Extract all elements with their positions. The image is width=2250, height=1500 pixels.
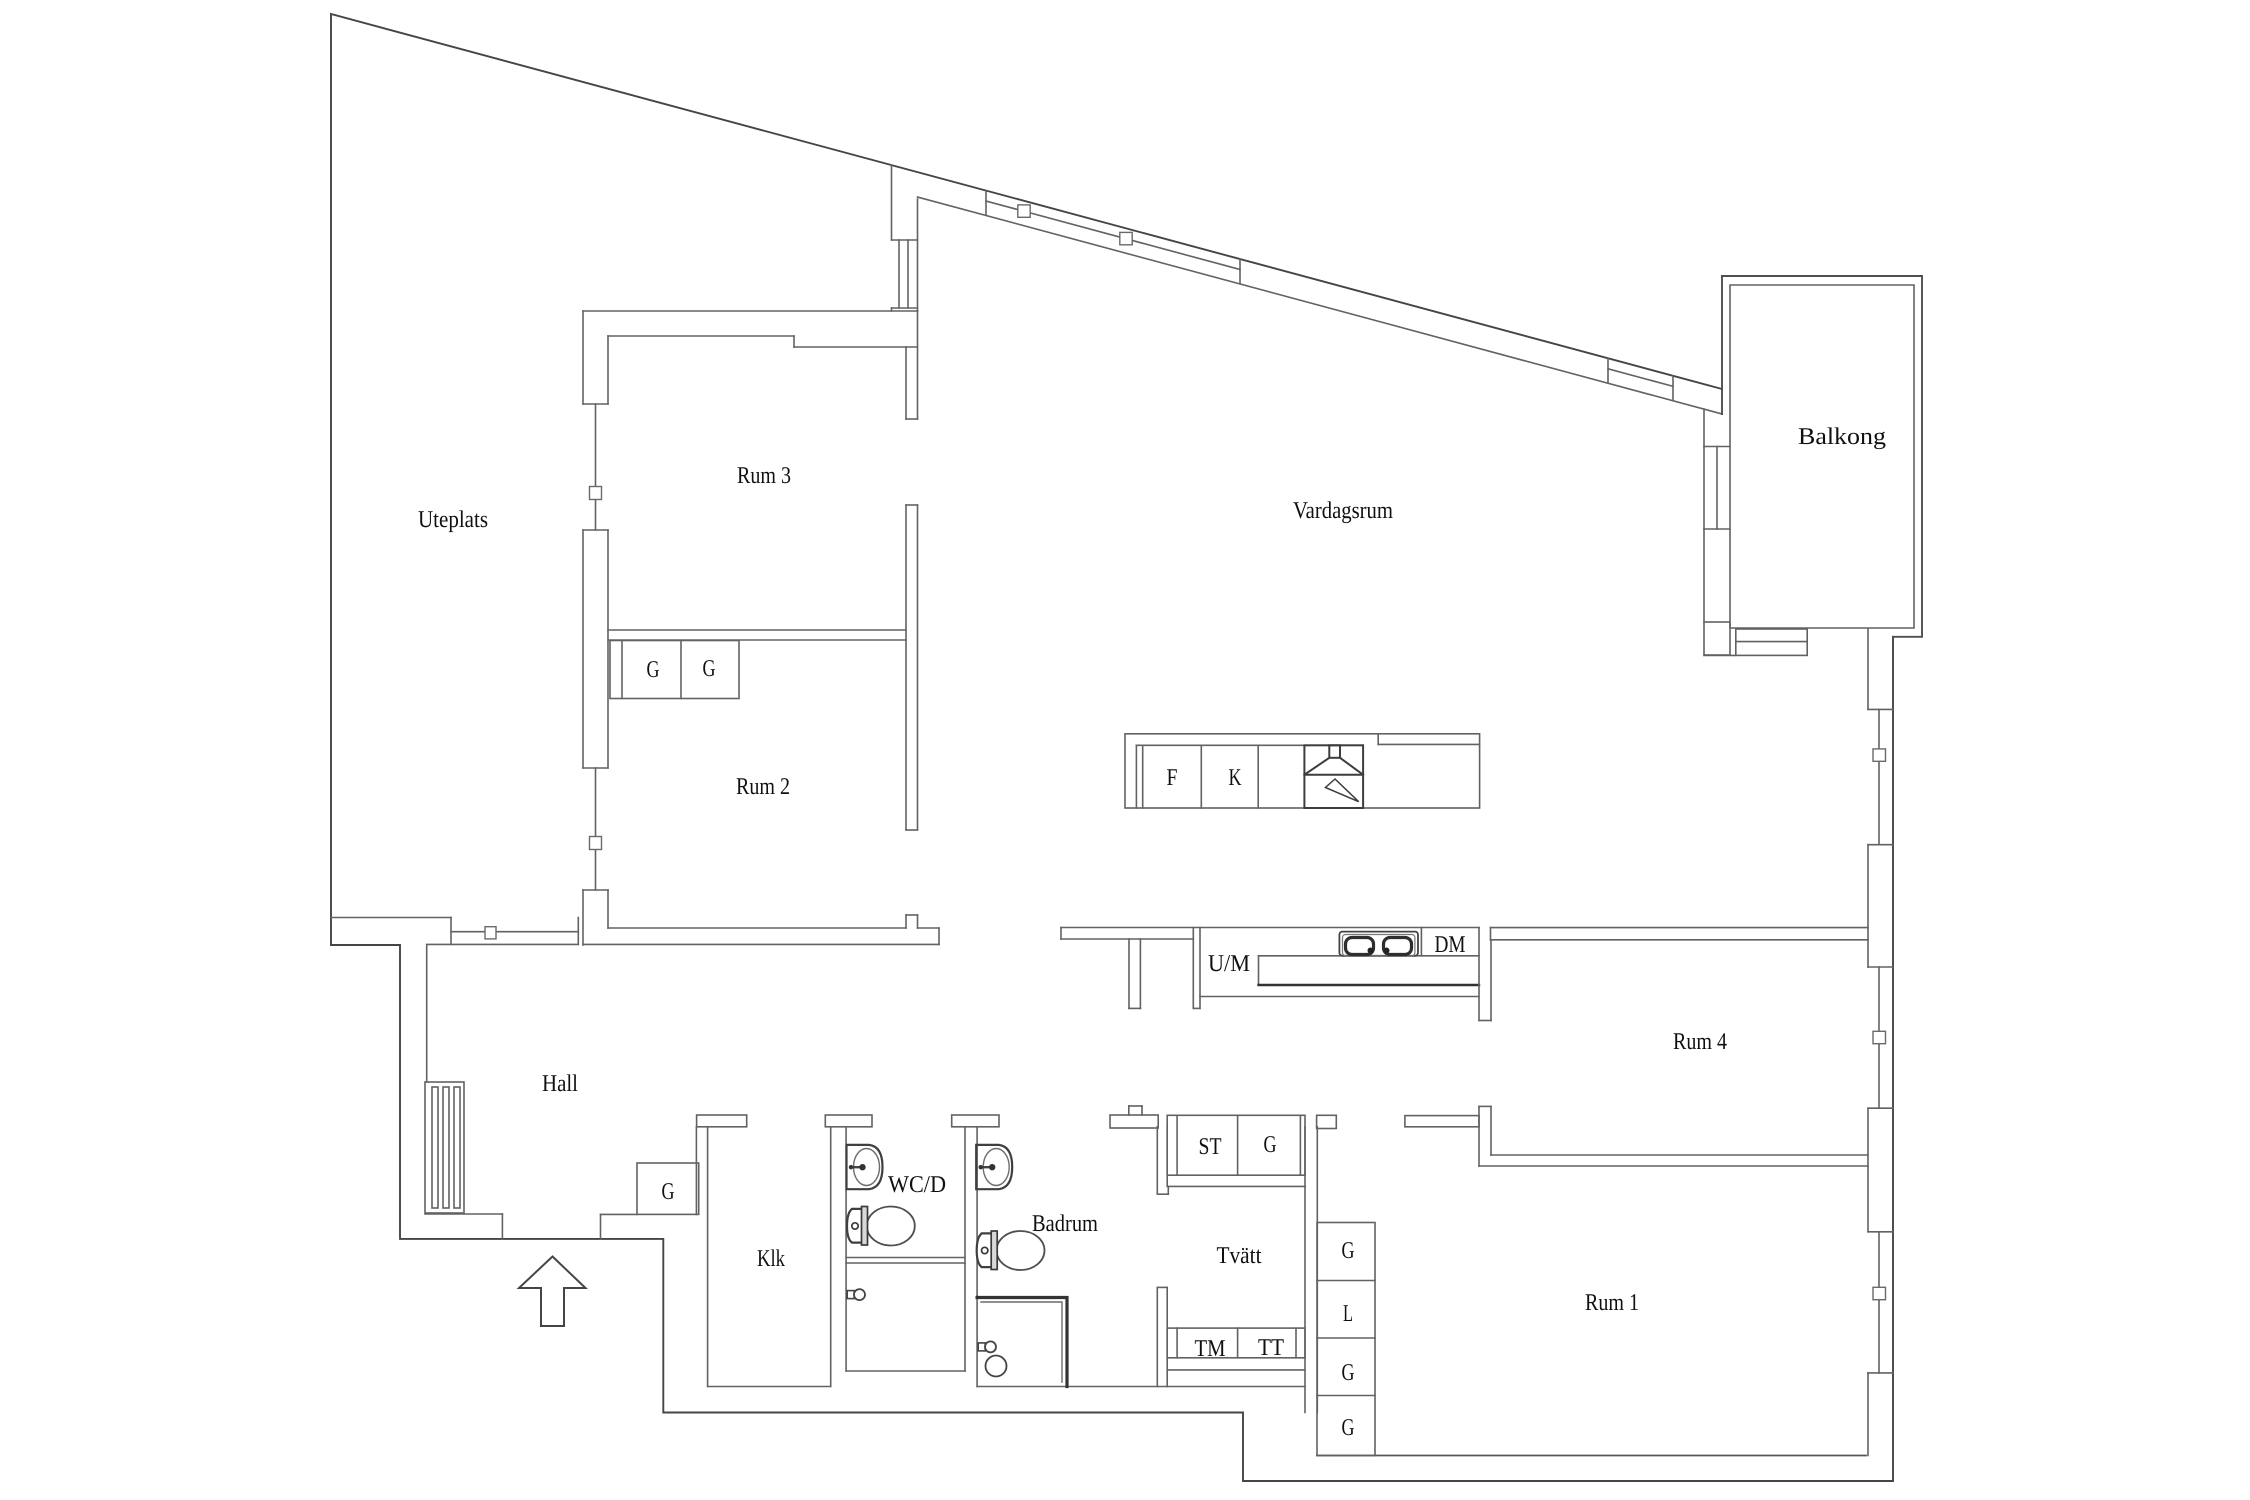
svg-text:Hall: Hall [542,1071,578,1097]
svg-text:DM: DM [1435,932,1466,958]
svg-text:Klk: Klk [757,1246,785,1272]
svg-text:Uteplats: Uteplats [418,507,488,533]
svg-text:G: G [1264,1132,1277,1158]
svg-text:G: G [1342,1415,1355,1441]
svg-text:Vardagsrum: Vardagsrum [1293,498,1393,524]
svg-text:Rum 4: Rum 4 [1673,1029,1727,1055]
svg-text:TM: TM [1195,1336,1226,1362]
svg-text:G: G [703,656,716,682]
svg-text:Badrum: Badrum [1032,1211,1098,1237]
svg-text:ST: ST [1199,1134,1222,1160]
svg-text:TT: TT [1258,1335,1284,1361]
svg-text:Balkong: Balkong [1798,424,1886,450]
svg-text:Rum 2: Rum 2 [736,774,790,800]
svg-text:L: L [1343,1301,1353,1327]
svg-text:U/M: U/M [1208,951,1250,977]
svg-text:G: G [1342,1360,1355,1386]
svg-text:Tvätt: Tvätt [1217,1243,1262,1269]
svg-text:G: G [662,1179,675,1205]
svg-text:Rum 3: Rum 3 [737,463,791,489]
svg-text:Rum 1: Rum 1 [1585,1290,1639,1316]
svg-text:F: F [1167,765,1178,791]
svg-text:WC/D: WC/D [888,1172,946,1198]
svg-text:K: K [1229,765,1242,791]
svg-text:G: G [647,657,660,683]
svg-text:G: G [1342,1238,1355,1264]
